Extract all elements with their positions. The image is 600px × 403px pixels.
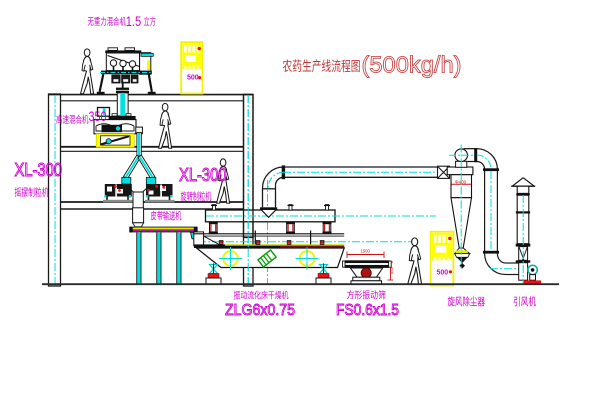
svg-text:农药生产线流程图: 农药生产线流程图 [283, 59, 361, 74]
svg-text:无重力混合机: 无重力混合机 [88, 16, 127, 28]
svg-text:方形振动筛: 方形振动筛 [347, 290, 387, 302]
svg-text:振动流化床干燥机: 振动流化床干燥机 [234, 290, 289, 301]
svg-text:高速混合机: 高速混合机 [56, 114, 89, 126]
svg-text:XL-300: XL-300 [15, 160, 63, 180]
svg-text:旋转制粒机: 旋转制粒机 [181, 190, 212, 203]
svg-text:旋风除尘器: 旋风除尘器 [448, 295, 486, 308]
svg-text:350: 350 [89, 108, 107, 124]
svg-text:1500: 1500 [361, 249, 371, 254]
svg-text:皮带输送机: 皮带输送机 [151, 210, 182, 223]
svg-text:XL-300: XL-300 [179, 165, 227, 185]
svg-text:引风机: 引风机 [513, 295, 536, 308]
svg-text:(500kg/h): (500kg/h) [362, 52, 462, 78]
svg-text:500: 500 [187, 75, 199, 82]
svg-text:1.5: 1.5 [126, 13, 142, 29]
svg-text:FS0.6x1.5: FS0.6x1.5 [336, 302, 399, 319]
svg-text:500: 500 [437, 270, 449, 277]
svg-text:立方: 立方 [144, 16, 157, 28]
svg-text:摇摆制粒机: 摇摆制粒机 [15, 186, 49, 199]
svg-text:ZLG6x0.75: ZLG6x0.75 [225, 302, 295, 319]
